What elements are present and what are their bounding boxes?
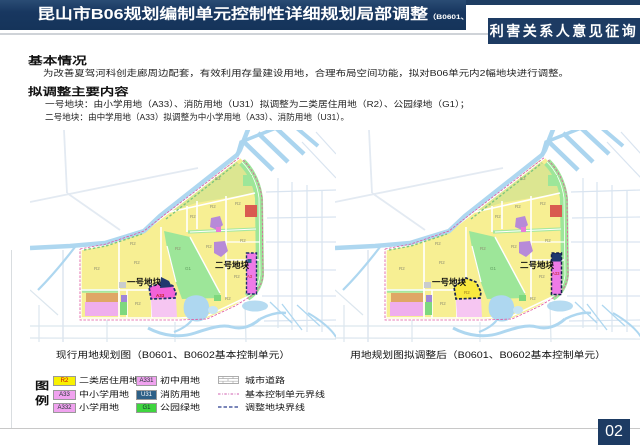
svg-text:一号地块: 一号地块	[127, 277, 162, 287]
svg-text:二号地块: 二号地块	[215, 260, 250, 270]
svg-text:一号地块: 一号地块	[432, 277, 467, 287]
svg-text:R2: R2	[135, 301, 141, 306]
svg-text:R2: R2	[240, 238, 246, 243]
svg-text:R2: R2	[190, 214, 196, 219]
svg-text:R2: R2	[464, 290, 470, 295]
svg-text:R2: R2	[210, 204, 216, 209]
svg-text:R2: R2	[134, 260, 140, 265]
svg-text:A33: A33	[552, 271, 560, 276]
svg-text:R2: R2	[130, 241, 136, 246]
svg-text:R2: R2	[94, 266, 100, 271]
svg-text:R2: R2	[234, 274, 240, 279]
svg-text:二号地块: 二号地块	[520, 260, 555, 270]
svg-text:R2: R2	[225, 296, 231, 301]
svg-text:E3: E3	[215, 176, 221, 181]
svg-text:R2: R2	[235, 201, 241, 206]
svg-text:R2: R2	[175, 246, 181, 251]
svg-text:G1: G1	[185, 266, 192, 271]
svg-text:R2: R2	[206, 244, 212, 249]
svg-text:A3: A3	[247, 274, 253, 279]
svg-text:A33: A33	[156, 293, 165, 298]
